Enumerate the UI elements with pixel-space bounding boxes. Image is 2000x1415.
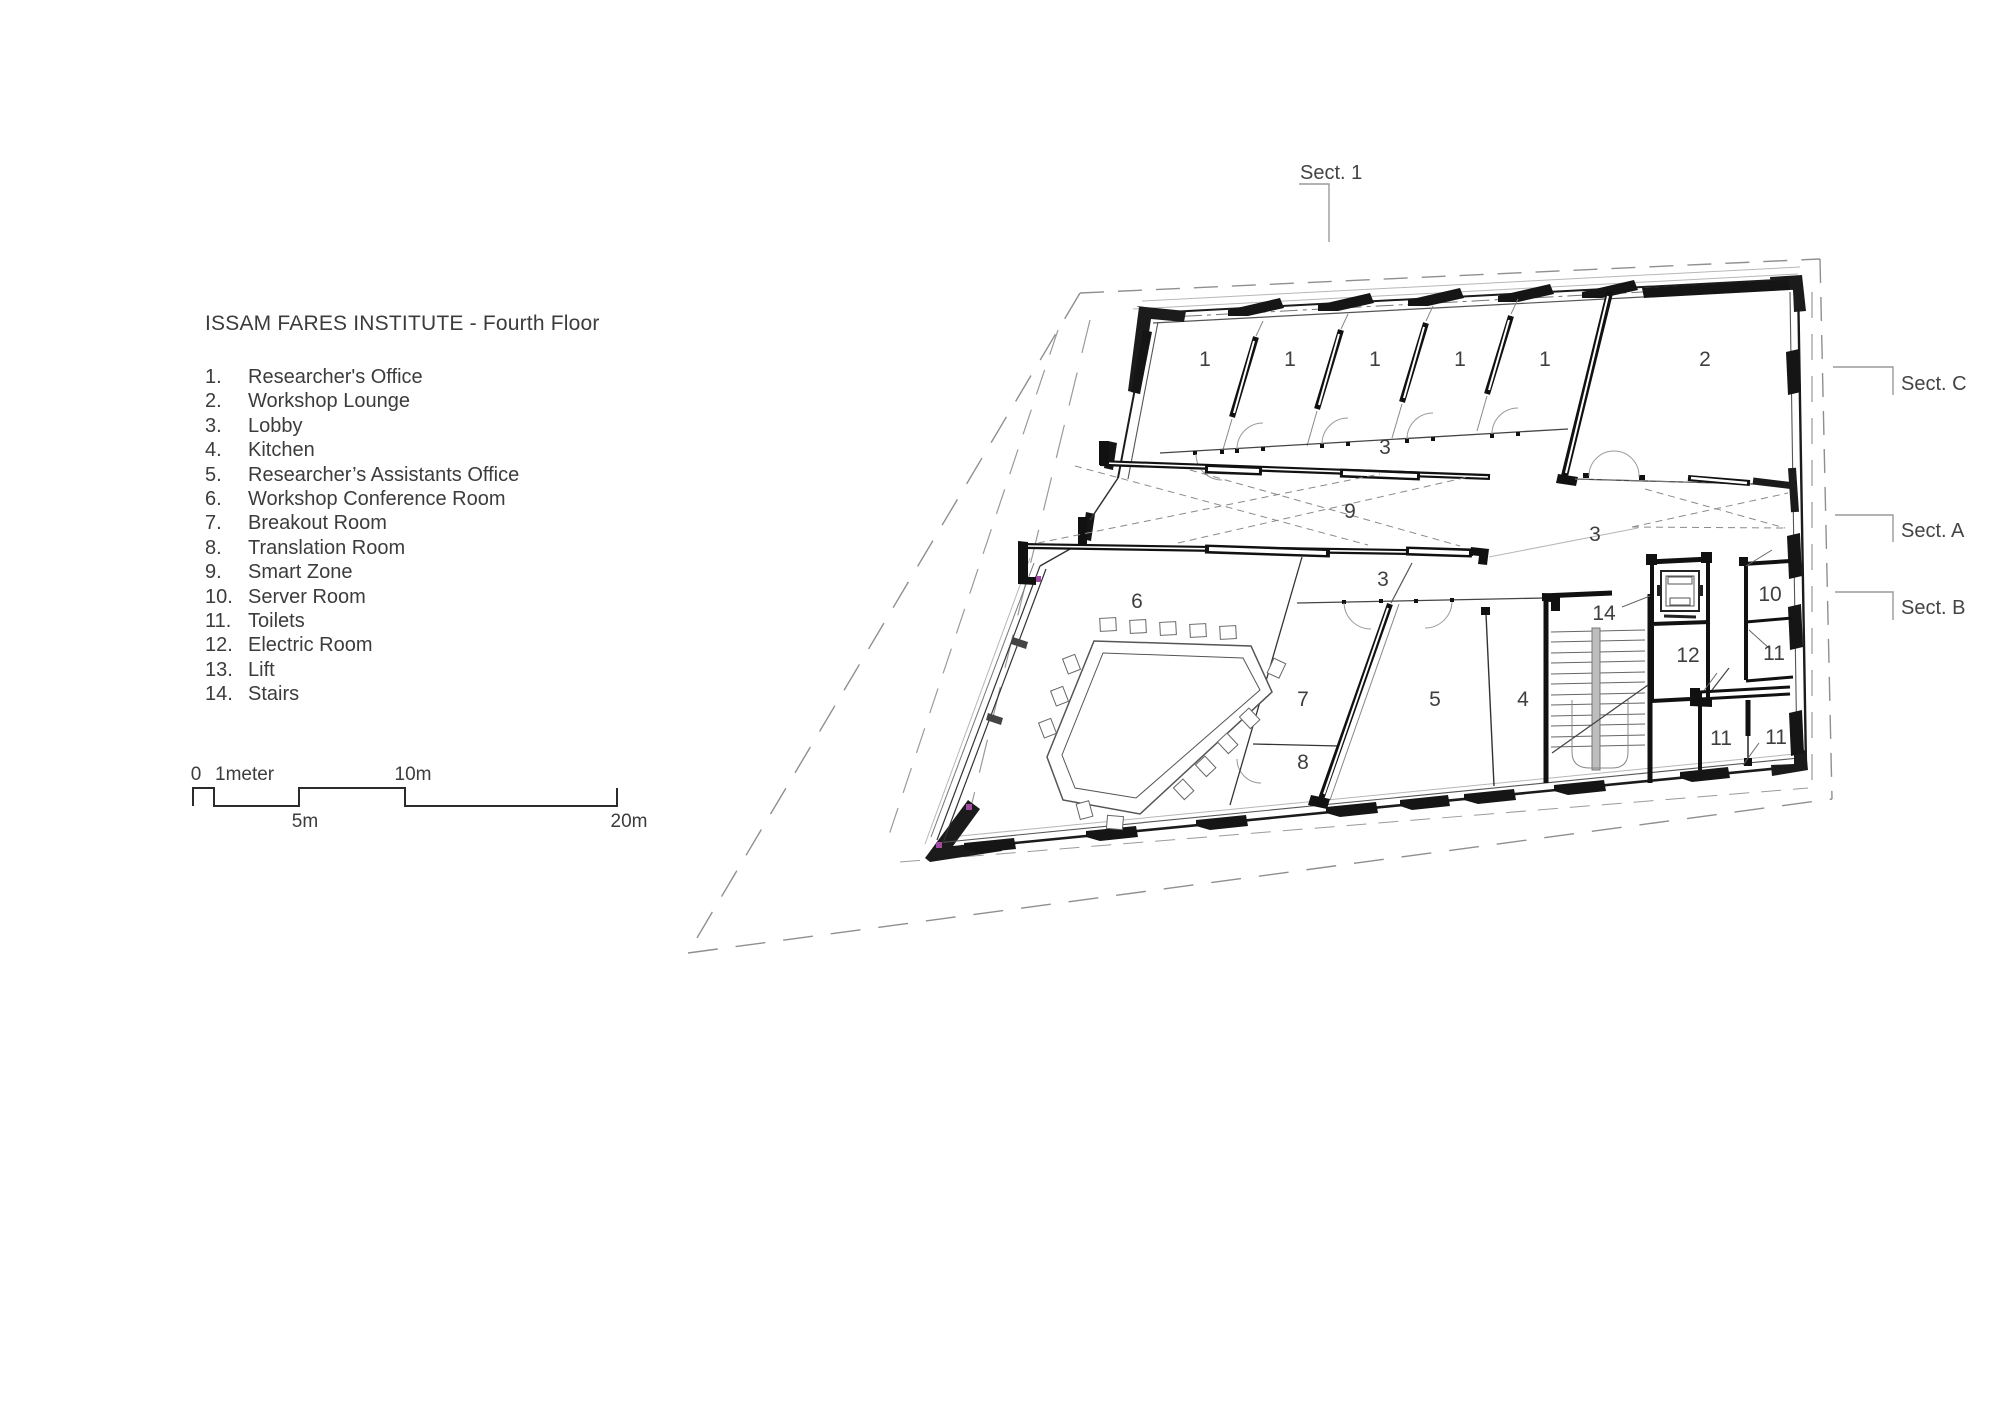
legend-item: 3.Lobby <box>205 415 665 439</box>
room-label-10: 10 <box>1758 583 1781 606</box>
room-label-1d: 1 <box>1454 348 1466 371</box>
conference-table <box>1039 618 1286 830</box>
scale-bar: 0 1meter 10m 5m 20m <box>191 764 648 832</box>
legend-item: 1.Researcher's Office <box>205 366 665 390</box>
room-label-5: 5 <box>1429 688 1441 711</box>
scale-one-meter: 1meter <box>215 764 275 785</box>
legend-item: 4.Kitchen <box>205 439 665 463</box>
room-label-1b: 1 <box>1284 348 1296 371</box>
section-a-label: Sect. A <box>1901 520 1965 542</box>
lounge-door-arcs <box>1589 451 1639 477</box>
legend-item: 6.Workshop Conference Room <box>205 488 665 512</box>
curtain-wall <box>931 563 1046 848</box>
scale-ten: 10m <box>395 764 432 785</box>
scale-five: 5m <box>292 811 318 832</box>
legend-item: 13.Lift <box>205 659 665 683</box>
legend-item: 12.Electric Room <box>205 634 665 658</box>
service-block <box>1542 550 1793 783</box>
room-label-3-east: 3 <box>1589 523 1601 546</box>
room-label-1a: 1 <box>1199 348 1211 371</box>
room-label-11c: 11 <box>1765 726 1787 749</box>
legend-list: 1.Researcher's Office 2.Workshop Lounge … <box>205 366 665 707</box>
plan-canvas: 0 1meter 10m 5m 20m Sect. 1 Sect. C Sect… <box>0 0 2000 1415</box>
legend: ISSAM FARES INSTITUTE - Fourth Floor 1.R… <box>205 312 600 336</box>
legend-item: 10.Server Room <box>205 586 665 610</box>
legend-item: 7.Breakout Room <box>205 512 665 536</box>
legend-item: 9.Smart Zone <box>205 561 665 585</box>
legend-item: 8.Translation Room <box>205 537 665 561</box>
scale-twenty: 20m <box>611 811 648 832</box>
room-label-1e: 1 <box>1539 348 1551 371</box>
room-label-11b: 11 <box>1710 727 1732 750</box>
room-label-1c: 1 <box>1369 348 1381 371</box>
floor-plan-sheet: ISSAM FARES INSTITUTE - Fourth Floor 1.R… <box>0 0 2000 1415</box>
office-partitions <box>1222 291 1610 486</box>
room-label-11a: 11 <box>1763 642 1785 665</box>
room-label-3-corridor: 3 <box>1379 436 1391 459</box>
legend-item: 2.Workshop Lounge <box>205 390 665 414</box>
room-label-9: 9 <box>1344 500 1356 523</box>
legend-item: 11.Toilets <box>205 610 665 634</box>
room-label-7: 7 <box>1297 688 1309 711</box>
lift-car <box>1657 571 1703 617</box>
legend-item: 14.Stairs <box>205 683 665 707</box>
room-label-8: 8 <box>1297 751 1309 774</box>
page-title: ISSAM FARES INSTITUTE - Fourth Floor <box>205 312 600 336</box>
room-label-14: 14 <box>1592 602 1616 625</box>
section-c-label: Sect. C <box>1901 373 1967 395</box>
room-label-3-south: 3 <box>1377 568 1389 591</box>
scale-zero: 0 <box>191 764 202 785</box>
room-label-2: 2 <box>1699 348 1711 371</box>
section-1-label: Sect. 1 <box>1300 162 1362 184</box>
room-dividers <box>1230 557 1494 809</box>
legend-item: 5.Researcher’s Assistants Office <box>205 464 665 488</box>
room-label-4: 4 <box>1517 688 1529 711</box>
room-label-6: 6 <box>1131 590 1143 613</box>
section-b-label: Sect. B <box>1901 597 1965 619</box>
room-label-12: 12 <box>1676 644 1699 667</box>
